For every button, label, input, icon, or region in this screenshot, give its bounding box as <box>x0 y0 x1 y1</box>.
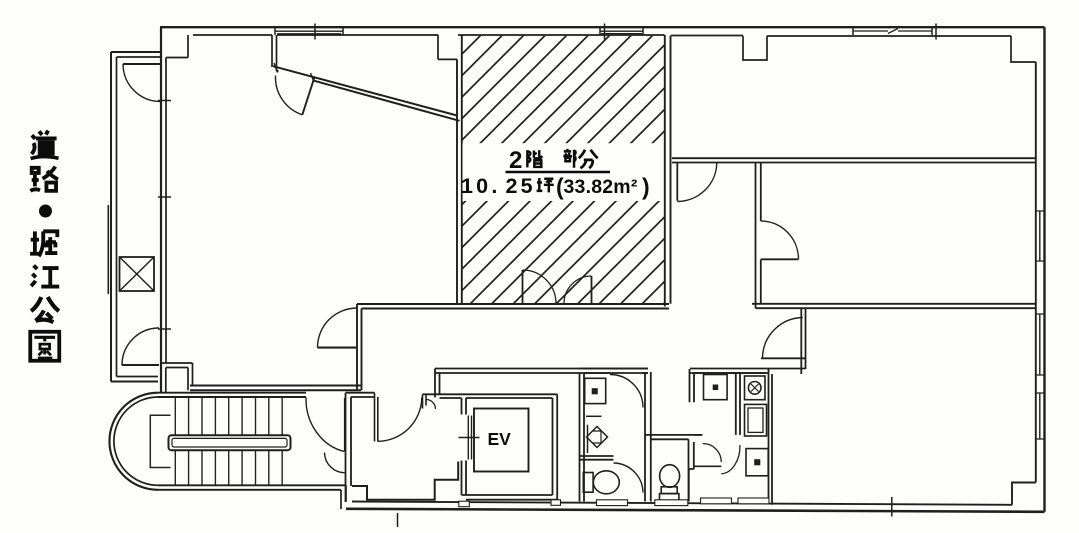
svg-text:2: 2 <box>509 147 522 174</box>
svg-text:10. 25: 10. 25 <box>461 174 536 198</box>
svg-text:33.82m²: 33.82m² <box>564 176 638 198</box>
svg-text:EV: EV <box>488 429 512 449</box>
svg-text:): ) <box>642 174 650 200</box>
